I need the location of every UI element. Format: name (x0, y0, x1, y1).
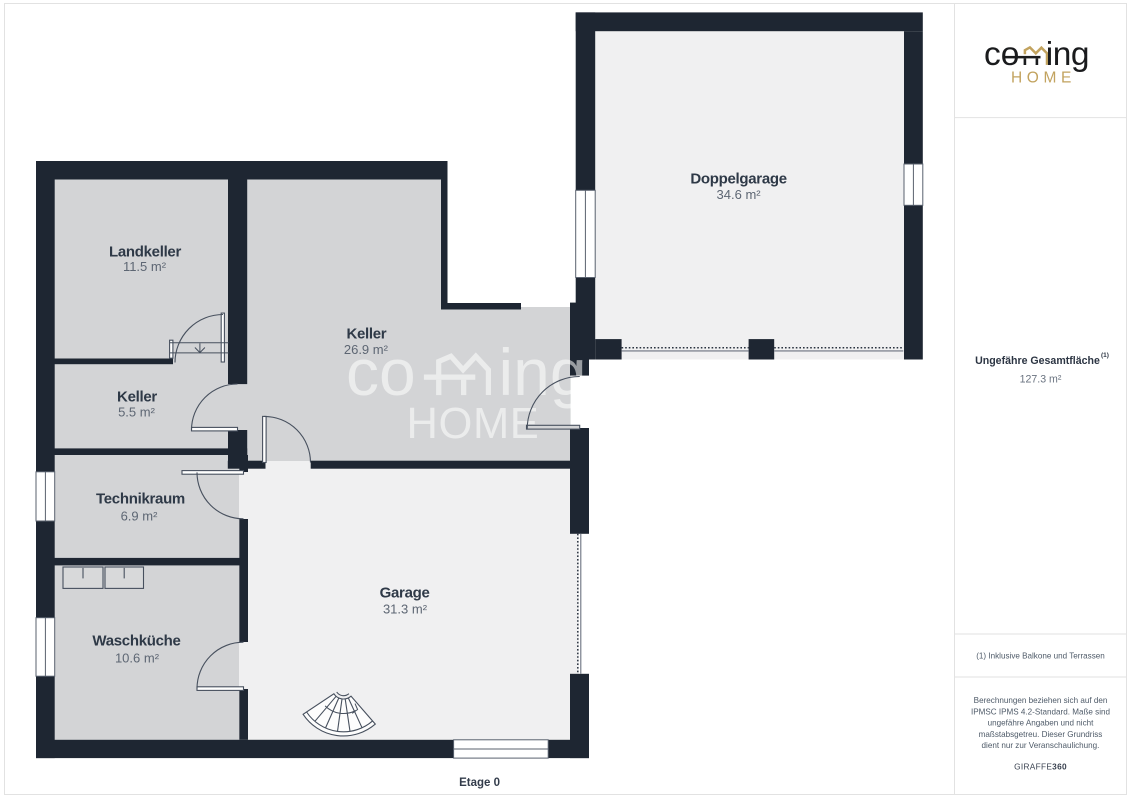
svg-text:5.5 m²: 5.5 m² (118, 405, 156, 420)
svg-text:co: co (984, 36, 1019, 73)
svg-text:GIRAFFE360: GIRAFFE360 (1014, 761, 1067, 771)
svg-text:11.5 m²: 11.5 m² (123, 259, 167, 274)
svg-text:Keller: Keller (117, 389, 157, 406)
svg-text:Berechnungen beziehen sich auf: Berechnungen beziehen sich auf den (974, 696, 1108, 705)
svg-text:Technikraum: Technikraum (96, 491, 185, 508)
svg-text:Etage 0: Etage 0 (459, 777, 500, 789)
svg-text:Ungefähre Gesamtfläche: Ungefähre Gesamtfläche (975, 355, 1100, 367)
svg-text:6.9 m²: 6.9 m² (121, 509, 159, 524)
svg-text:34.6 m²: 34.6 m² (717, 187, 762, 202)
svg-text:10.6 m²: 10.6 m² (115, 651, 160, 666)
svg-text:Landkeller: Landkeller (109, 244, 181, 261)
svg-text:Keller: Keller (346, 326, 386, 343)
svg-text:Waschküche: Waschküche (92, 633, 180, 650)
svg-text:(1): (1) (1101, 352, 1109, 359)
svg-text:maßstabsgetreu. Dieser Grundri: maßstabsgetreu. Dieser Grundriss (979, 730, 1103, 739)
svg-text:127.3 m²: 127.3 m² (1020, 373, 1062, 385)
svg-text:dient nur zur Veranschaulichun: dient nur zur Veranschaulichung. (982, 741, 1100, 750)
svg-text:HOME: HOME (407, 400, 540, 448)
svg-text:ing: ing (1046, 36, 1089, 73)
svg-text:31.3 m²: 31.3 m² (383, 602, 428, 617)
svg-text:IPMSC IPMS 4.2-Standard. Maße: IPMSC IPMS 4.2-Standard. Maße sind (971, 707, 1110, 716)
svg-text:26.9 m²: 26.9 m² (344, 342, 389, 357)
svg-text:ungefähre Angaben und nicht: ungefähre Angaben und nicht (988, 719, 1095, 728)
svg-text:Doppelgarage: Doppelgarage (690, 170, 786, 187)
svg-text:HOME: HOME (1011, 70, 1076, 87)
svg-text:ing: ing (499, 335, 587, 409)
svg-text:Garage: Garage (380, 584, 430, 601)
svg-text:(1) Inklusive Balkone und Terr: (1) Inklusive Balkone und Terrassen (976, 652, 1105, 661)
